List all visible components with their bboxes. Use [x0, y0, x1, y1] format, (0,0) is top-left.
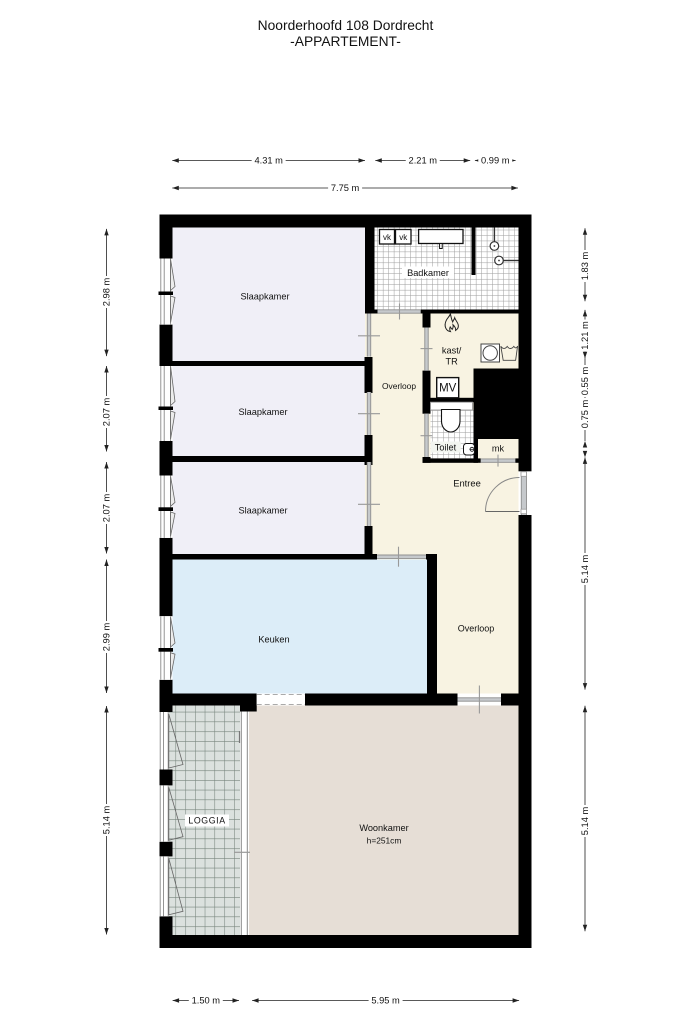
svg-text:Noorderhoofd 108 Dordrecht: Noorderhoofd 108 Dordrecht	[258, 18, 434, 33]
svg-text:vk: vk	[383, 233, 392, 242]
svg-text:Badkamer: Badkamer	[407, 268, 449, 278]
svg-text:Keuken: Keuken	[258, 635, 289, 645]
svg-text:0.99 m: 0.99 m	[481, 156, 510, 166]
svg-text:-APPARTEMENT-: -APPARTEMENT-	[290, 34, 401, 49]
svg-text:0.75 m: 0.75 m	[580, 400, 590, 429]
svg-text:Overloop: Overloop	[458, 624, 495, 634]
svg-text:Overloop: Overloop	[382, 381, 416, 391]
svg-text:2.07 m: 2.07 m	[102, 494, 112, 523]
svg-text:5.14 m: 5.14 m	[580, 807, 590, 836]
svg-text:2.21 m: 2.21 m	[409, 156, 438, 166]
svg-text:Entree: Entree	[453, 478, 481, 489]
svg-text:mk: mk	[492, 444, 505, 454]
svg-text:5.14 m: 5.14 m	[580, 555, 590, 584]
svg-text:1.21 m: 1.21 m	[580, 321, 590, 350]
svg-text:5.14 m: 5.14 m	[102, 806, 112, 835]
svg-text:MV: MV	[439, 383, 457, 395]
svg-text:Slaapkamer: Slaapkamer	[238, 407, 287, 417]
svg-text:2.98 m: 2.98 m	[102, 278, 112, 307]
svg-text:5.95 m: 5.95 m	[371, 996, 400, 1006]
svg-text:0.55 m: 0.55 m	[580, 367, 590, 396]
svg-text:1.50 m: 1.50 m	[192, 996, 221, 1006]
svg-text:vk: vk	[399, 233, 408, 242]
svg-text:2.07 m: 2.07 m	[102, 398, 112, 427]
svg-text:Slaapkamer: Slaapkamer	[240, 292, 289, 302]
svg-text:Toilet: Toilet	[435, 443, 457, 453]
svg-text:kast/: kast/	[442, 346, 462, 356]
svg-text:h=251cm: h=251cm	[367, 836, 402, 846]
svg-text:LOGGIA: LOGGIA	[188, 816, 225, 826]
svg-text:2.99 m: 2.99 m	[102, 623, 112, 652]
svg-text:7.75 m: 7.75 m	[331, 183, 360, 193]
svg-text:1.83 m: 1.83 m	[580, 252, 590, 281]
svg-text:Slaapkamer: Slaapkamer	[238, 506, 287, 516]
svg-text:4.31 m: 4.31 m	[254, 156, 283, 166]
svg-text:Woonkamer: Woonkamer	[359, 823, 408, 833]
svg-text:TR: TR	[445, 357, 458, 367]
